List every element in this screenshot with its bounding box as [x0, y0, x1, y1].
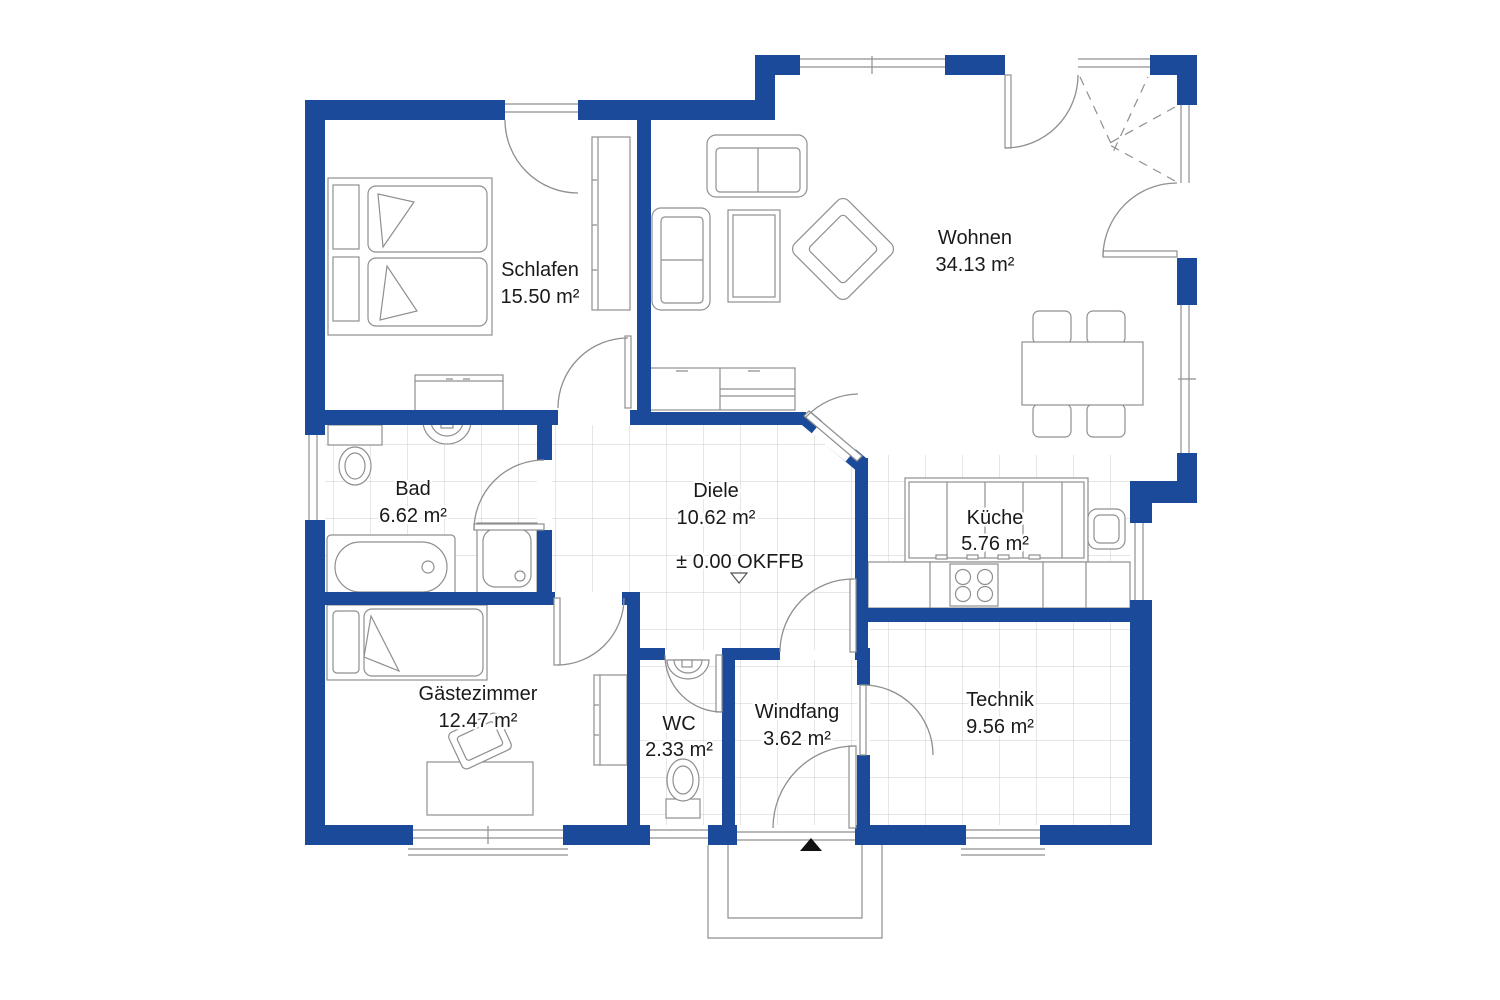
level-marker-text: ± 0.00 OKFFB [676, 551, 804, 573]
wall-schlafen-diele [630, 410, 651, 425]
wall-diele-windfang [855, 648, 870, 660]
area-wohnen: 34.13 m² [936, 254, 1015, 276]
label-bad: Bad [395, 478, 431, 500]
exterior-wall-right [1177, 258, 1197, 305]
exterior-wall-top-wohnen [755, 55, 800, 75]
area-gaestezimmer: 12.47 m² [439, 710, 518, 732]
chair-symbol [1087, 404, 1125, 437]
area-bad: 6.62 m² [379, 505, 447, 527]
dining-table-symbol [1022, 342, 1143, 405]
label-wc: WC [662, 713, 695, 735]
toilet-tank-symbol [666, 799, 700, 818]
exterior-wall-left [305, 520, 325, 845]
exterior-wall-top [578, 100, 775, 120]
entrance-threshold [737, 832, 855, 840]
sink-tap [682, 660, 692, 667]
wall-wc-windfang [722, 660, 735, 825]
gaestezimmer-window [408, 826, 568, 855]
exterior-wall-bottom [708, 825, 737, 845]
schlafen-window [505, 104, 578, 112]
bad-door-leaf [474, 524, 544, 530]
label-technik: Technik [966, 689, 1035, 711]
windfang-diele-door-leaf [850, 579, 856, 652]
label-schlafen: Schlafen [501, 259, 579, 281]
wohnen-top-window-2 [1078, 59, 1150, 67]
toilet-tank-symbol [328, 425, 382, 445]
exterior-wall-right-lower [1130, 481, 1152, 523]
floor-plan-page: Schlafen 15.50 m² Wohnen 34.13 m² Bad 6.… [0, 0, 1500, 1000]
area-kueche: 5.76 m² [961, 533, 1029, 555]
label-wohnen: Wohnen [938, 227, 1012, 249]
label-windfang: Windfang [755, 701, 840, 723]
area-schlafen: 15.50 m² [501, 286, 580, 308]
chair-symbol [1087, 311, 1125, 344]
wohnen-right-window [1178, 305, 1196, 453]
technik-window [961, 830, 1045, 855]
wohnen-furniture [645, 135, 1143, 437]
window-opening-direction-lines [1080, 77, 1175, 181]
area-wc: 2.33 m² [645, 739, 713, 761]
wall-windfang-technik [857, 755, 870, 825]
area-technik: 9.56 m² [966, 716, 1034, 738]
kitchen-lower-counter [868, 562, 1130, 608]
pillow-symbol [333, 611, 359, 673]
label-kueche: Küche [967, 507, 1024, 529]
windfang-technik-door-leaf [860, 685, 866, 755]
wall-diele-wc [640, 648, 665, 660]
diagonal-door-swing [806, 394, 858, 417]
terrace-door-leaf [1005, 75, 1011, 148]
wc-door-leaf [716, 655, 722, 712]
wall-diele-windfang [722, 648, 780, 660]
exterior-wall-right [1177, 55, 1197, 105]
exterior-wall-bottom [305, 825, 413, 845]
coffee-table-top [733, 215, 775, 297]
cabinet-handle [936, 555, 947, 559]
bathtub-drain [422, 561, 434, 573]
toilet-bowl [673, 766, 693, 794]
exterior-wall-right-lower [1130, 600, 1152, 845]
shower-drain [515, 571, 525, 581]
exterior-wall-bottom [855, 825, 966, 845]
exterior-wall-bottom [1040, 825, 1152, 845]
kitchen-sink-basin [1094, 515, 1119, 543]
label-diele: Diele [693, 480, 739, 502]
entrance-porch [708, 845, 882, 938]
diele-floor [552, 425, 858, 650]
area-windfang: 3.62 m² [763, 728, 831, 750]
terrace-door-leaf-right [1103, 251, 1177, 257]
entrance [708, 838, 882, 938]
wall-schlafen-bad [325, 410, 558, 425]
area-diele: 10.62 m² [677, 507, 756, 529]
gaestezimmer-door-swing [557, 598, 624, 665]
wall-windfang-technik [857, 660, 870, 685]
entrance-door-leaf [849, 746, 856, 828]
cabinet-handle [1029, 555, 1040, 559]
wall-bad-gaestezimmer [325, 592, 555, 605]
toilet-bowl [345, 453, 365, 479]
exterior-wall-top-wohnen [945, 55, 1005, 75]
schlafen-door-leaf [625, 336, 631, 408]
terrace-door-swing [1005, 75, 1078, 148]
wall-wohnen-diele [651, 412, 806, 425]
wohnen-top-window [800, 56, 945, 74]
cabinet-handle [967, 555, 978, 559]
label-gaestezimmer: Gästezimmer [419, 683, 538, 705]
schlafen-window-swing [505, 120, 578, 193]
schlafen-furniture [328, 137, 630, 412]
wall-schlafen-wohnen [637, 100, 651, 425]
wall-bad-diele [537, 425, 552, 460]
wc-window [650, 830, 708, 838]
kueche-window [1135, 523, 1143, 600]
wall-diele-gaestezimmer [622, 592, 640, 605]
chair-symbol [1033, 404, 1071, 437]
wardrobe-symbol [594, 675, 627, 765]
bad-window [309, 435, 317, 520]
exterior-wall-bottom [563, 825, 650, 845]
bed-head-left-symbol [333, 185, 359, 249]
wall-gaestezimmer-wc [627, 605, 640, 825]
schlafen-door-swing [558, 338, 628, 408]
floor-plan: Schlafen 15.50 m² Wohnen 34.13 m² Bad 6.… [0, 0, 1500, 1000]
exterior-wall-left [305, 100, 325, 435]
cabinet-handle [998, 555, 1009, 559]
wall-kueche-technik [857, 608, 1130, 622]
exterior-wall-top [305, 100, 505, 120]
gaestezimmer-door-leaf [554, 598, 560, 665]
bed-head-right-symbol [333, 257, 359, 321]
terrace-door-swing-right [1103, 183, 1177, 257]
wohnen-right-fixed-glass [1181, 105, 1189, 183]
chair-symbol [1033, 311, 1071, 344]
armchair-symbol [789, 195, 896, 302]
stove-symbol [950, 564, 998, 606]
desk-symbol [427, 762, 533, 815]
